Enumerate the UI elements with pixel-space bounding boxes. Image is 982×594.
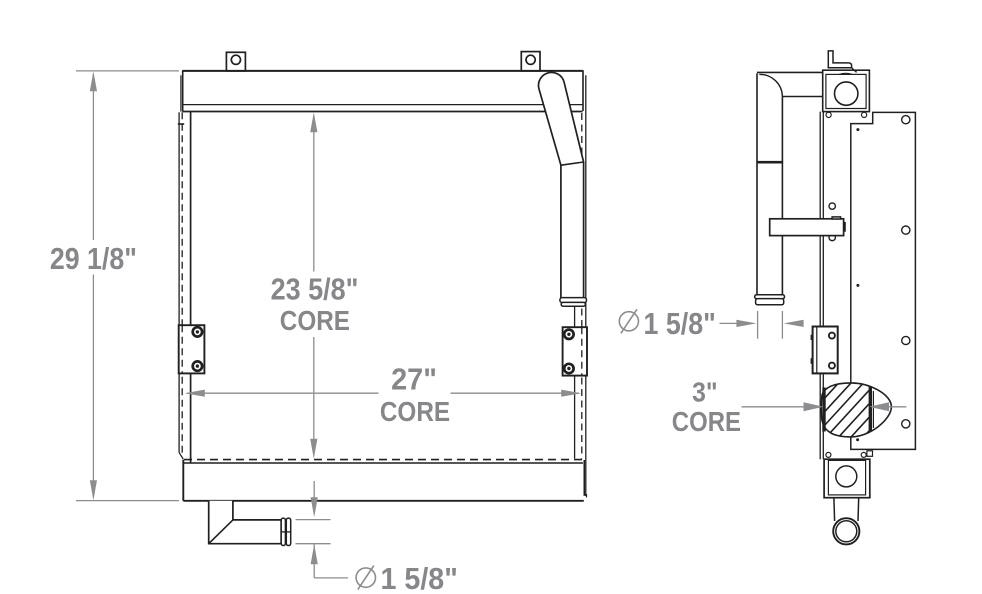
svg-text:27": 27" xyxy=(391,362,437,397)
svg-text:CORE: CORE xyxy=(280,305,350,336)
svg-text:1 5/8": 1 5/8" xyxy=(381,561,458,594)
svg-text:29 1/8": 29 1/8" xyxy=(50,241,137,276)
svg-text:3": 3" xyxy=(692,377,718,408)
svg-text:23 5/8": 23 5/8" xyxy=(271,272,359,307)
svg-text:CORE: CORE xyxy=(672,406,741,437)
svg-text:CORE: CORE xyxy=(380,396,450,427)
svg-text:1 5/8": 1 5/8" xyxy=(644,306,716,341)
